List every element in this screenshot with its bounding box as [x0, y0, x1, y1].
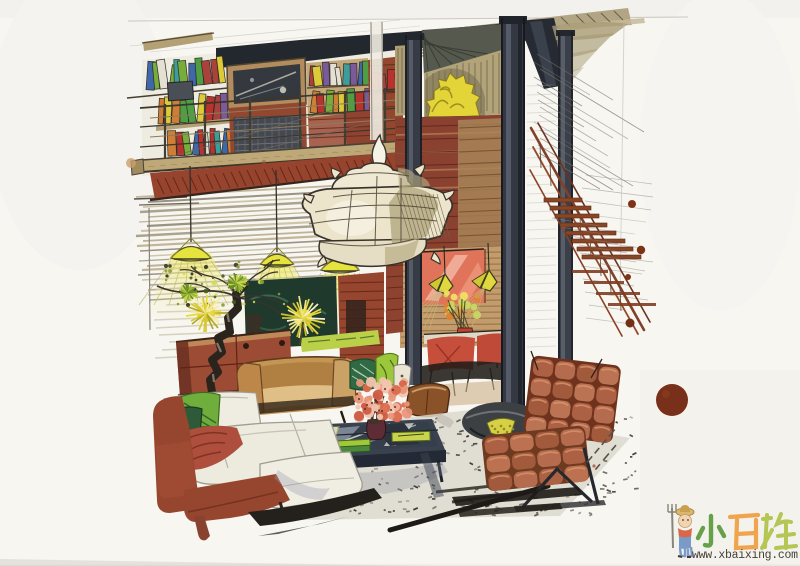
svg-text:www.xbaixing.com: www.xbaixing.com: [692, 549, 798, 562]
